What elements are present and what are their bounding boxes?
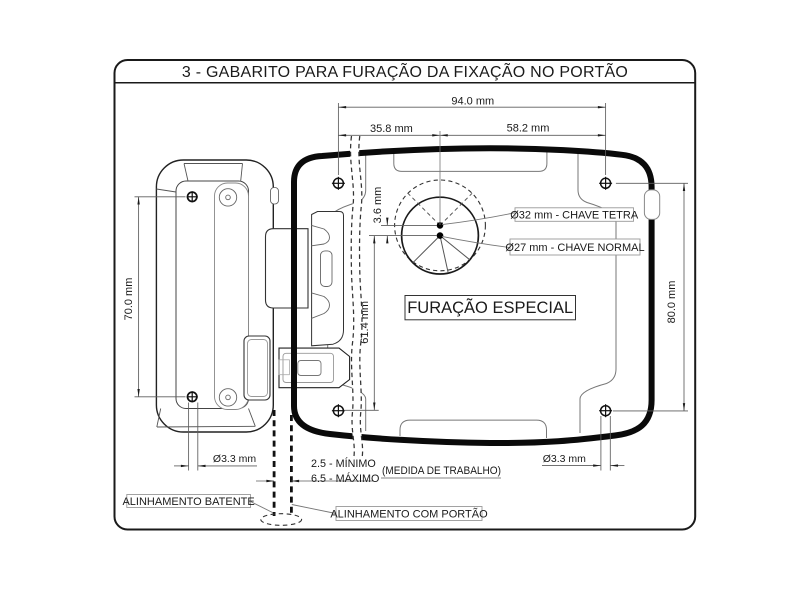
svg-text:(MEDIDA DE TRABALHO): (MEDIDA DE TRABALHO) <box>382 465 501 477</box>
svg-text:ALINHAMENTO COM PORTÃO: ALINHAMENTO COM PORTÃO <box>330 507 488 520</box>
svg-text:Ø3.3 mm: Ø3.3 mm <box>213 453 256 465</box>
svg-text:80.0 mm: 80.0 mm <box>666 281 678 324</box>
svg-text:94.0 mm: 94.0 mm <box>451 96 494 108</box>
svg-text:70.0 mm: 70.0 mm <box>123 278 135 321</box>
svg-text:6.5 - MÁXIMO: 6.5 - MÁXIMO <box>311 472 379 485</box>
svg-text:3.6 mm: 3.6 mm <box>372 187 384 224</box>
svg-text:61.4 mm: 61.4 mm <box>359 301 371 344</box>
svg-text:FURAÇÃO ESPECIAL: FURAÇÃO ESPECIAL <box>407 297 573 317</box>
svg-text:Ø3.3 mm: Ø3.3 mm <box>543 453 586 465</box>
svg-text:Ø27 mm - CHAVE NORMAL: Ø27 mm - CHAVE NORMAL <box>505 242 644 254</box>
svg-text:ALINHAMENTO BATENTE: ALINHAMENTO BATENTE <box>122 496 254 508</box>
svg-text:3 - GABARITO PARA FURAÇÃO DA F: 3 - GABARITO PARA FURAÇÃO DA FIXAÇÃO NO … <box>182 61 628 81</box>
svg-text:2.5 - MÍNIMO: 2.5 - MÍNIMO <box>311 457 376 470</box>
svg-text:58.2 mm: 58.2 mm <box>507 122 550 134</box>
svg-text:35.8 mm: 35.8 mm <box>370 123 413 135</box>
svg-text:Ø32 mm - CHAVE TETRA: Ø32 mm - CHAVE TETRA <box>510 209 639 221</box>
